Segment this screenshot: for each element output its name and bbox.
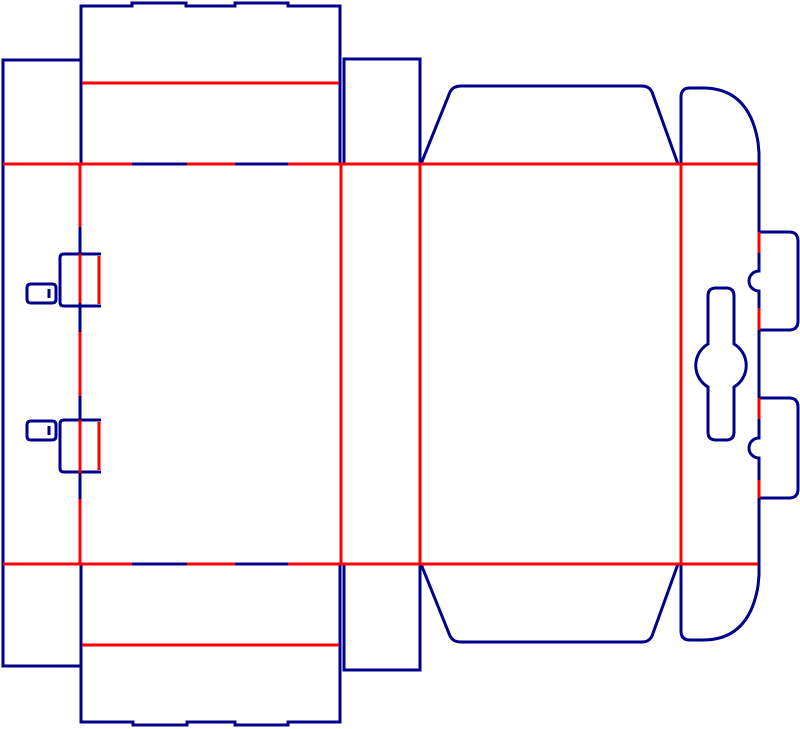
bottom-back-dust-flap-outline <box>421 564 678 642</box>
crease-lines <box>3 83 759 645</box>
bottom-curved-flap-outline <box>681 564 759 640</box>
right-lock-tab-1-outline <box>759 232 798 330</box>
cut-lines <box>3 3 798 725</box>
right-lock-tab-2-outline <box>759 398 798 498</box>
dieline-canvas <box>0 0 800 729</box>
left-lock-panel-outline <box>3 60 80 666</box>
left-slot-2 <box>27 421 56 440</box>
left-slot-1 <box>27 284 56 303</box>
dieline-drawing <box>0 0 800 729</box>
top-curved-flap-outline <box>681 88 759 164</box>
keyhole-cutout <box>696 288 746 440</box>
bottom-side-dust-flap-outline <box>344 564 420 670</box>
tuck-panel-right-edge-cuts <box>749 164 759 564</box>
top-back-dust-flap-outline <box>421 86 678 164</box>
top-side-dust-flap-outline <box>344 59 420 164</box>
